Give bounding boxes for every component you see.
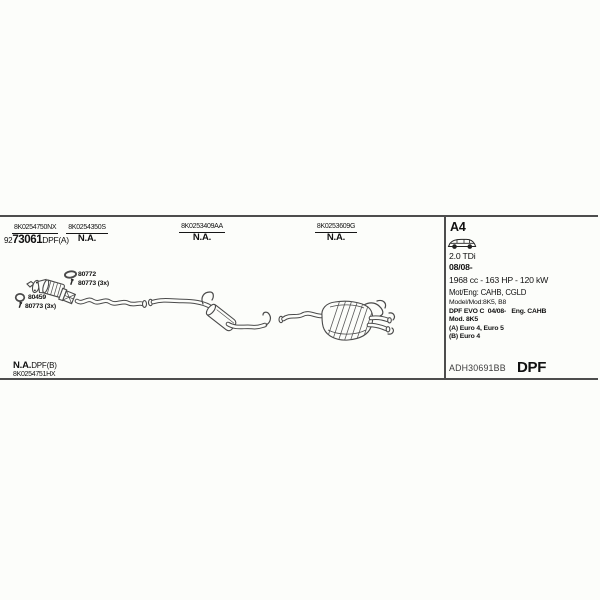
catalog-code-suffix: DPF(A)	[42, 235, 69, 245]
part-group-3: 8K0253409AA N.A.	[176, 220, 228, 242]
rear-muffler	[322, 300, 376, 342]
note-mod: Mod. 8K5	[449, 316, 478, 323]
exhaust-catalog-page: 8K0254750NX 9273061DPF(A) 8K0254350S N.A…	[0, 0, 600, 600]
rear-pipe	[279, 313, 322, 322]
part-group-dpf-a: 8K0254750NX 9273061DPF(A)	[4, 221, 69, 246]
centre-pipe	[149, 292, 214, 306]
drawing-reference: ADH30691BB	[449, 363, 506, 373]
exhaust-system-drawing	[0, 0, 600, 600]
hardware-label-gasket: 80459	[28, 294, 46, 301]
hardware-label-bolt: 80773 (3x)	[78, 280, 109, 287]
front-pipe	[77, 300, 147, 308]
part-number: 8K0254751HX	[13, 371, 57, 380]
part-number: 8K0254750NX	[12, 224, 58, 234]
model-codes: Model/Mod:8K5, B8	[449, 299, 506, 306]
hanger-rod	[377, 300, 386, 308]
production-date: 08/08-	[449, 262, 472, 272]
bolt-icon	[69, 279, 73, 286]
gasket-icon	[65, 271, 77, 279]
hardware-label-gasket: 80772	[78, 271, 96, 278]
variant-suffix: DPF(B)	[31, 361, 56, 370]
engine-name: 2.0 TDi	[449, 251, 475, 261]
note-euro-a: (A) Euro 4, Euro 5	[449, 325, 504, 332]
catalog-code: 73061	[12, 234, 42, 246]
availability: N.A.	[311, 234, 361, 242]
availability: N.A.	[66, 235, 108, 243]
hardware-label-bolt: 80773 (3x)	[25, 303, 56, 310]
system-type-badge: DPF	[517, 359, 546, 376]
availability: N.A.	[176, 234, 228, 242]
part-group-dpf-b: N.A.DPF(B) 8K0254751HX	[13, 360, 57, 379]
availability: N.A.	[13, 360, 31, 371]
part-group-2: 8K0254350S N.A.	[66, 221, 108, 243]
wagon-icon	[447, 236, 477, 250]
vehicle-model: A4	[450, 220, 466, 234]
engine-codes: Mot/Eng: CAHB, CGLD	[449, 288, 526, 297]
gasket-icon	[16, 294, 25, 301]
displacement-power: 1968 cc - 163 HP - 120 kW	[449, 275, 548, 285]
note-euro-b: (B) Euro 4	[449, 333, 480, 340]
bolt-icon	[18, 302, 22, 309]
note-dpf-evo: DPF EVO C 04/08- Eng. CAHB	[449, 308, 546, 315]
part-group-4: 8K0253609G N.A.	[311, 220, 361, 242]
